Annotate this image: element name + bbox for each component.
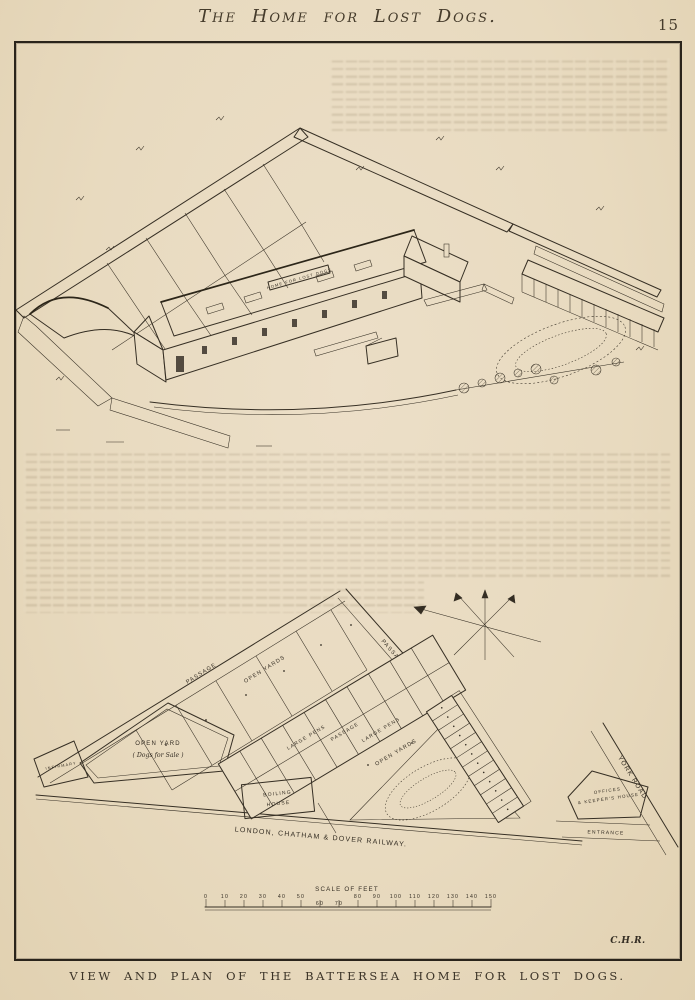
- open-yard-subtitle: ( Dogs for Sale ): [132, 752, 184, 759]
- plate-caption: VIEW AND PLAN OF THE BATTERSEA HOME FOR …: [0, 969, 695, 983]
- svg-text:130: 130: [447, 894, 459, 900]
- svg-text:40: 40: [278, 894, 286, 900]
- svg-text:90: 90: [373, 894, 381, 900]
- svg-text:110: 110: [409, 894, 421, 900]
- open-yard-for-sale: OPEN YARD ( Dogs for Sale ): [80, 703, 234, 783]
- small-pens-strip: [426, 691, 531, 823]
- page-number: 15: [658, 16, 679, 34]
- grass-tufts: [56, 116, 644, 446]
- perimeter-wall: [16, 128, 661, 318]
- artist-signature: C.H.R.: [588, 936, 668, 946]
- engraving-page: The Home for Lost Dogs. 15: [0, 0, 695, 1000]
- svg-text:150: 150: [485, 894, 497, 900]
- open-yards-left-label: OPEN YARDS: [243, 655, 287, 685]
- svg-text:60: 60: [316, 901, 324, 907]
- svg-text:50: 50: [297, 894, 305, 900]
- small-hut: [366, 338, 398, 364]
- passage-left-label: PASSAGE: [185, 662, 218, 685]
- svg-text:120: 120: [428, 894, 440, 900]
- open-yards-right-label: OPEN YARDS: [374, 738, 418, 768]
- birdseye-view-illustration: HOME FOR LOST DOGS: [16, 50, 678, 450]
- svg-text:20: 20: [240, 894, 248, 900]
- svg-text:140: 140: [466, 894, 478, 900]
- svg-text:70: 70: [335, 901, 343, 907]
- infirmary: INFIRMARY: [34, 741, 88, 787]
- entrance-label: ENTRANCE: [587, 829, 624, 836]
- page-title: The Home for Lost Dogs.: [0, 6, 695, 27]
- kennel-building: HOME FOR LOST DOGS: [134, 230, 468, 382]
- shrubs: [459, 358, 620, 393]
- svg-text:0: 0: [204, 894, 208, 900]
- entrance: ENTRANCE: [556, 821, 660, 841]
- offices-label2: & KEEPER'S HOUSE: [578, 792, 640, 806]
- railway-label: LONDON, CHATHAM & DOVER RAILWAY.: [234, 826, 407, 848]
- lean-to-sheds: [522, 246, 664, 350]
- open-yard-title: OPEN YARD: [135, 741, 181, 747]
- chimney: [444, 244, 449, 257]
- boiling-house-label2: HOUSE: [266, 800, 290, 808]
- scale-bar: SCALE OF FEET 0 10 20 30 40 50 60: [204, 886, 497, 910]
- large-pens-block: LARGE PENS PASSAGE LARGE PENS: [218, 635, 465, 819]
- svg-text:10: 10: [221, 894, 229, 900]
- scale-title: SCALE OF FEET: [315, 886, 379, 893]
- svg-text:30: 30: [259, 894, 267, 900]
- offices-label1: OFFICES: [593, 786, 621, 795]
- svg-text:80: 80: [354, 894, 362, 900]
- paling-fence: [18, 316, 230, 448]
- svg-text:100: 100: [390, 894, 402, 900]
- ground-plan: PASSAGE PASSAGE LONDON, CHATHAM & DOVER …: [16, 585, 678, 945]
